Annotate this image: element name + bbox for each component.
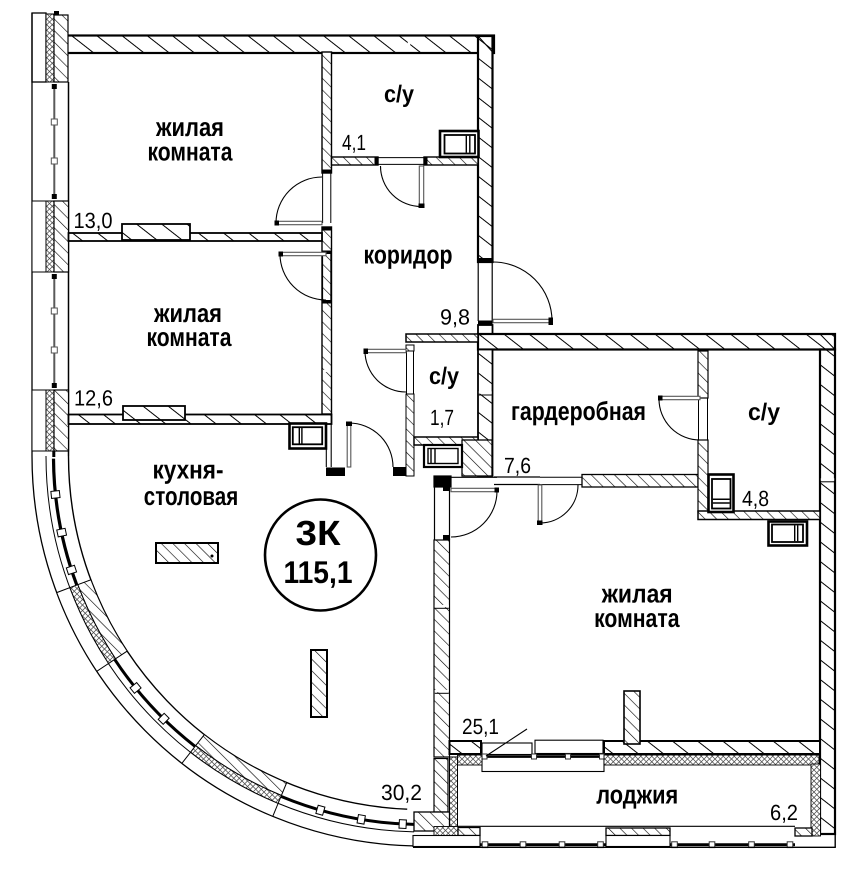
- svg-text:коридор: коридор: [364, 240, 453, 270]
- svg-text:с/у: с/у: [429, 363, 460, 390]
- svg-text:комната: комната: [147, 322, 232, 352]
- svg-text:столовая: столовая: [144, 481, 239, 511]
- svg-text:с/у: с/у: [748, 399, 781, 426]
- svg-text:комната: комната: [594, 603, 680, 633]
- svg-text:кухня-: кухня-: [153, 455, 224, 485]
- svg-text:4,8: 4,8: [742, 486, 769, 511]
- svg-text:лоджия: лоджия: [596, 780, 678, 810]
- svg-text:12,6: 12,6: [74, 386, 113, 411]
- svg-text:1,7: 1,7: [430, 405, 454, 430]
- svg-text:6,2: 6,2: [770, 800, 798, 825]
- svg-text:9,8: 9,8: [440, 305, 470, 330]
- svg-text:25,1: 25,1: [462, 714, 499, 739]
- svg-text:с/у: с/у: [384, 81, 415, 108]
- svg-text:комната: комната: [148, 137, 233, 167]
- svg-text:3К: 3К: [296, 514, 342, 553]
- svg-text:4,1: 4,1: [342, 130, 366, 155]
- svg-text:гардеробная: гардеробная: [511, 396, 646, 426]
- svg-text:115,1: 115,1: [284, 554, 353, 590]
- svg-text:13,0: 13,0: [74, 208, 113, 233]
- svg-text:30,2: 30,2: [381, 780, 422, 805]
- svg-text:7,6: 7,6: [504, 453, 531, 478]
